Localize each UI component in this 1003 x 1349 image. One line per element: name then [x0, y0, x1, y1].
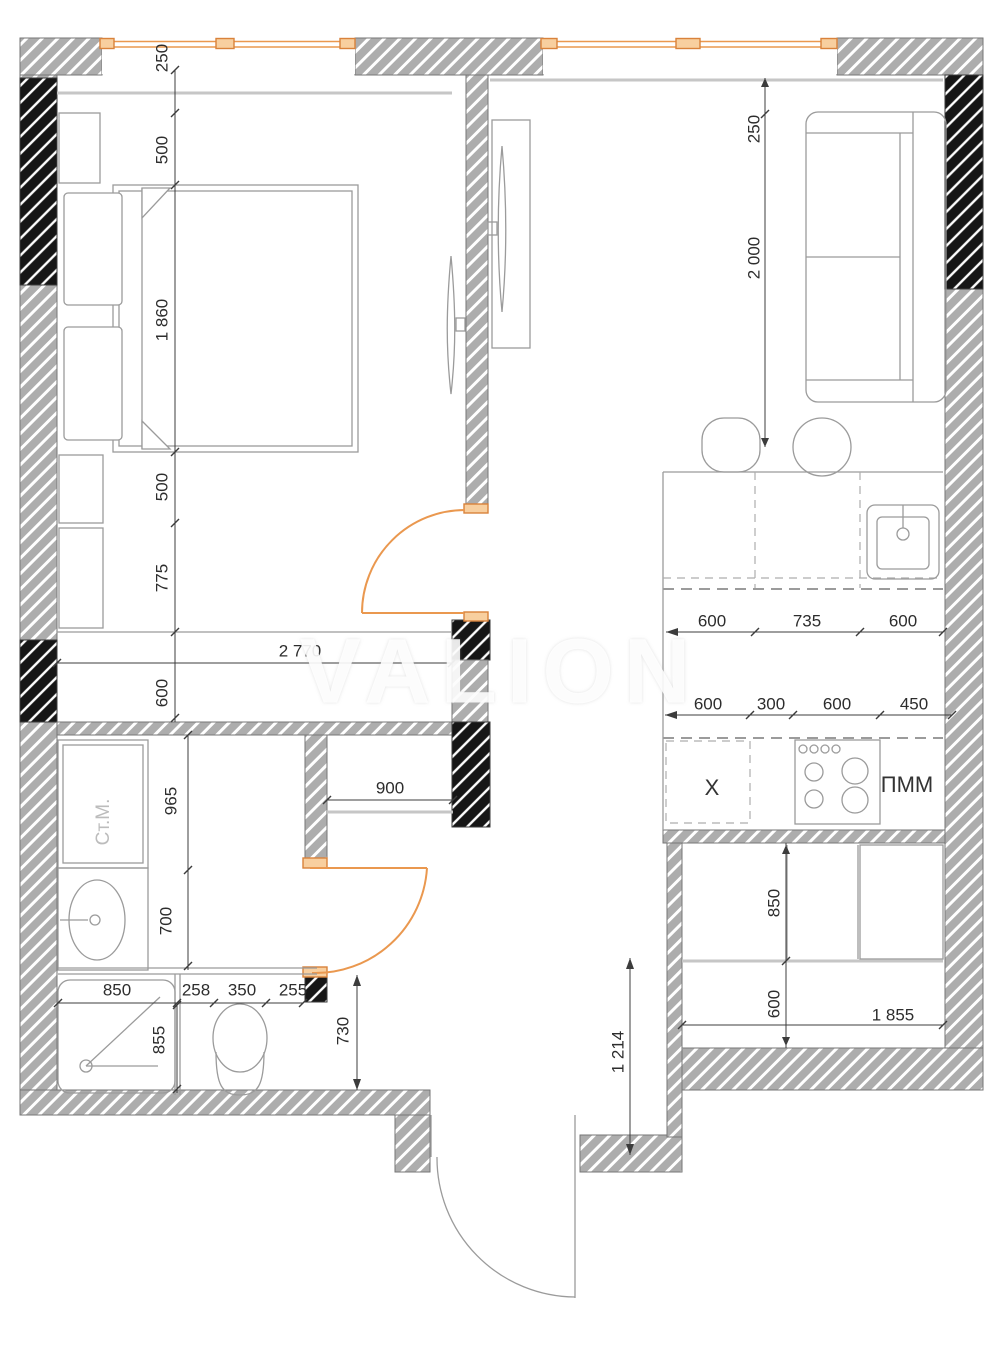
- dimension-label: 700: [156, 907, 175, 935]
- kitchen-sink-icon: [867, 505, 939, 579]
- room-annotation: Ст.М.: [93, 799, 114, 846]
- dimension-label: 600: [694, 694, 722, 713]
- dimension-label: 2 770: [279, 641, 322, 660]
- bedroom-door: [362, 504, 488, 621]
- dimension-label: 2 000: [744, 237, 763, 280]
- dimension-label: 500: [152, 136, 171, 164]
- dimension-label: 258: [182, 980, 210, 999]
- vanity-sink: [58, 868, 148, 970]
- bed: [64, 185, 358, 452]
- dimension-label: 250: [152, 44, 171, 72]
- room-annotation: ПММ: [881, 772, 933, 797]
- bathroom-door: [303, 858, 427, 977]
- dimension-label: 600: [889, 611, 917, 630]
- dimension-label: 775: [152, 564, 171, 592]
- bedroom-tv-icon: [447, 256, 465, 394]
- dimension-label: 850: [764, 889, 783, 917]
- dimension-label: 600: [764, 990, 783, 1018]
- dimension-label: 350: [228, 980, 256, 999]
- dimension-label: 735: [793, 611, 821, 630]
- dimension-label: 600: [698, 611, 726, 630]
- dimension-label: 850: [103, 980, 131, 999]
- dimension-label: 1 860: [152, 299, 171, 342]
- dimension-label: 500: [152, 473, 171, 501]
- floor-plan-svg: 2505001 8605007756002 7702502 0006007356…: [0, 0, 1003, 1349]
- dimension-label: 1 855: [872, 1005, 915, 1024]
- dimension-label: 450: [900, 694, 928, 713]
- dimension-label: 600: [152, 679, 171, 707]
- room-annotation: X: [705, 775, 720, 800]
- dimension-label: 300: [757, 694, 785, 713]
- toilet-icon: [213, 1004, 267, 1095]
- stove-icon: [799, 745, 868, 813]
- entry-door: [431, 1115, 575, 1298]
- floor-plan: 2505001 8605007756002 7702502 0006007356…: [0, 0, 1003, 1349]
- dimension-labels: 2505001 8605007756002 7702502 0006007356…: [103, 44, 928, 1073]
- dimension-label: 1 214: [608, 1031, 627, 1074]
- dimension-label: 255: [279, 980, 307, 999]
- living-tv-icon: [488, 120, 530, 348]
- bar-chairs: [702, 418, 851, 476]
- dimension-label: 855: [149, 1026, 168, 1054]
- dimension-label: 900: [376, 778, 404, 797]
- dimension-label: 600: [823, 694, 851, 713]
- dimension-label: 250: [744, 115, 763, 143]
- dimension-label: 730: [333, 1017, 352, 1045]
- dimension-label: 965: [161, 787, 180, 815]
- sofa: [806, 112, 946, 402]
